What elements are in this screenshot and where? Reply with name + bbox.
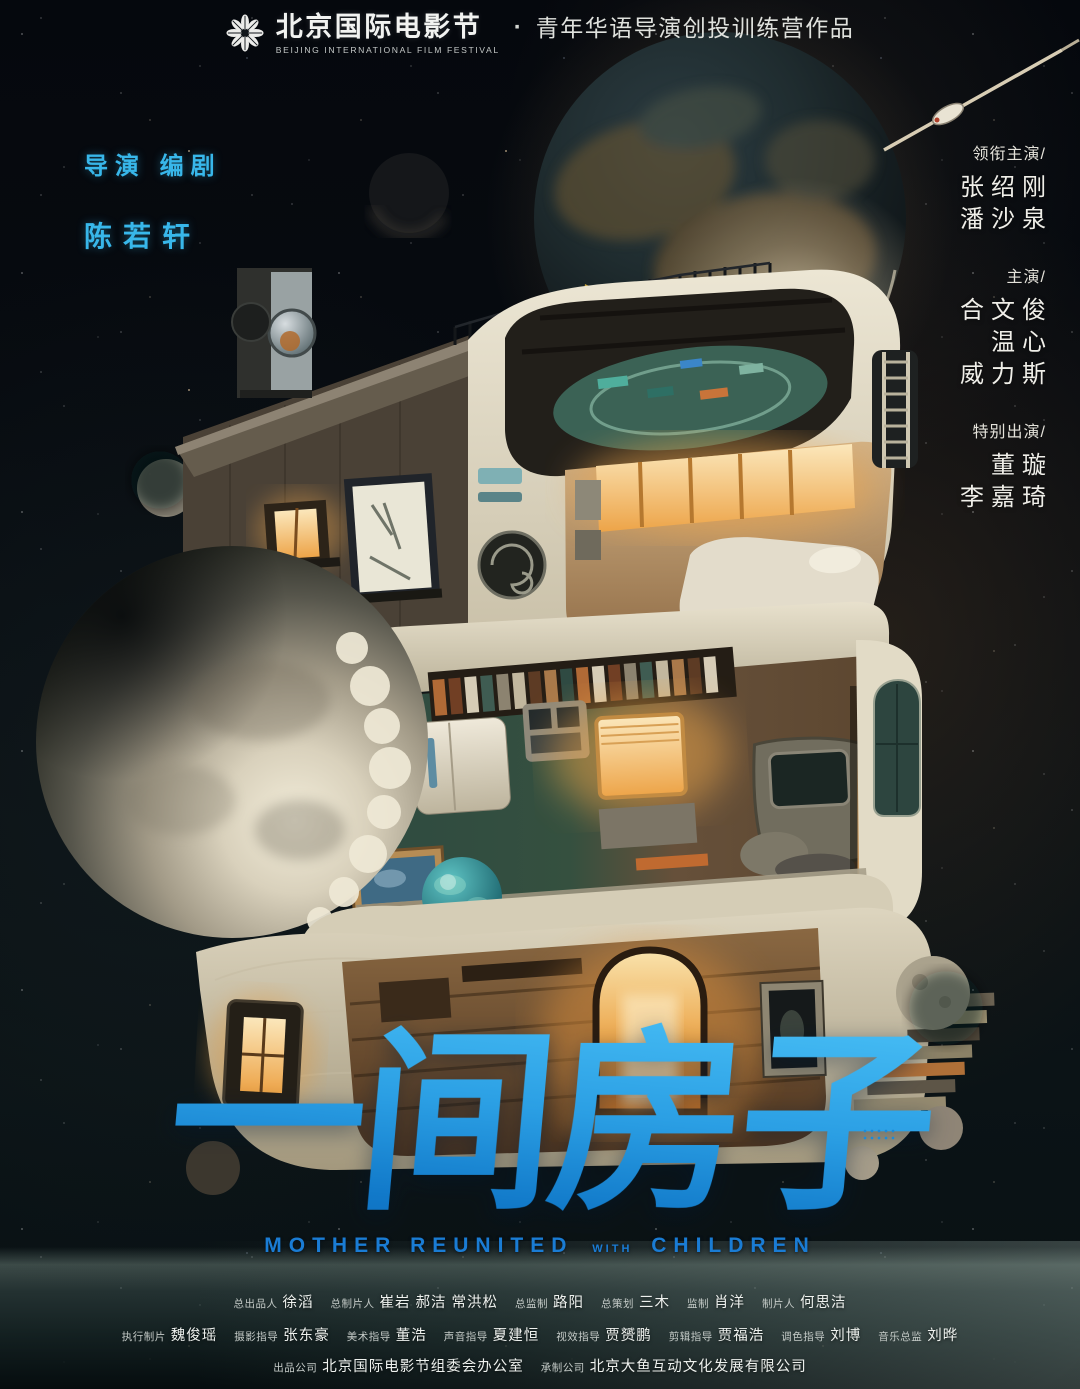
cast-block: 领衔主演/ 张绍刚 潘沙泉 主演/ 合文俊 温心 威力斯 特别出演/ 董璇 李嘉…	[960, 140, 1046, 541]
credit-item: 制片人何思洁	[762, 1291, 847, 1312]
credit-item: 总制片人崔岩 郝洁 常洪松	[330, 1291, 498, 1312]
cast-group-lead: 领衔主演/ 张绍刚 潘沙泉	[960, 140, 1046, 236]
director-name: 陈若轩	[84, 215, 222, 255]
separator-dot: ·	[514, 12, 522, 43]
credit-item: 声音指导夏建恒	[444, 1324, 540, 1345]
director-roles-label: 导演 编剧	[84, 146, 222, 181]
credit-item: 承制公司北京大鱼互动文化发展有限公司	[541, 1355, 807, 1376]
director-block: 导演 编剧 陈若轩	[84, 146, 222, 255]
festival-program-label: 青年华语导演创投训练营作品	[536, 12, 855, 44]
title-en-part2: WITH	[592, 1243, 632, 1255]
credit-item: 总出品人徐滔	[233, 1291, 313, 1312]
festival-name-block: 北京国际电影节 BEIJING INTERNATIONAL FILM FESTI…	[276, 12, 500, 55]
festival-name-en: BEIJING INTERNATIONAL FILM FESTIVAL	[276, 45, 500, 55]
cast-name: 董璇	[960, 450, 1053, 482]
credit-item: 执行制片魏俊瑶	[122, 1324, 218, 1345]
title-en-part1: MOTHER REUNITED	[264, 1234, 573, 1257]
credit-item: 音乐总监刘晔	[878, 1324, 958, 1345]
credits-line-2: 执行制片魏俊瑶 摄影指导张东豪 美术指导董浩 声音指导夏建恒 视效指导贾赟鹏 剪…	[0, 1324, 1080, 1345]
credits-line-1: 总出品人徐滔 总制片人崔岩 郝洁 常洪松 总监制路阳 总策划三木 监制肖洋 制片…	[0, 1291, 1080, 1312]
festival-header: 北京国际电影节 BEIJING INTERNATIONAL FILM FESTI…	[0, 12, 1080, 55]
cast-role-label: 特别出演/	[960, 418, 1046, 442]
credit-item: 调色指导刘博	[781, 1324, 861, 1345]
credit-item: 剪辑指导贾福浩	[669, 1324, 765, 1345]
credit-item: 总策划三木	[601, 1291, 670, 1312]
cast-group-starring: 主演/ 合文俊 温心 威力斯	[960, 263, 1046, 391]
cast-name: 温心	[960, 327, 1053, 359]
credit-item: 美术指导董浩	[347, 1324, 427, 1345]
cast-name: 合文俊	[960, 295, 1053, 327]
credit-item: 监制肖洋	[687, 1291, 745, 1312]
festival-name-cn: 北京国际电影节	[276, 12, 483, 43]
cast-name: 潘沙泉	[960, 204, 1053, 236]
cast-name: 李嘉琦	[960, 482, 1053, 514]
cast-role-label: 主演/	[960, 263, 1046, 287]
credit-item: 视效指导贾赟鹏	[556, 1324, 652, 1345]
cast-role-label: 领衔主演/	[960, 140, 1046, 164]
movie-title-en: MOTHER REUNITED WITH CHILDREN	[0, 1234, 1080, 1258]
cast-name: 威力斯	[960, 359, 1053, 391]
movie-title-cn: 一间房子	[151, 1016, 950, 1231]
movie-poster: 北京国际电影节 BEIJING INTERNATIONAL FILM FESTI…	[0, 0, 1080, 1389]
title-en-part3: CHILDREN	[651, 1234, 816, 1257]
title-circuit-dots-decoration	[862, 1128, 896, 1141]
credit-item: 摄影指导张东豪	[234, 1324, 330, 1345]
credit-item: 出品公司北京国际电影节组委会办公室	[273, 1355, 524, 1376]
credit-item: 总监制路阳	[515, 1291, 584, 1312]
cast-group-special: 特别出演/ 董璇 李嘉琦	[960, 418, 1046, 514]
credits-line-3: 出品公司北京国际电影节组委会办公室 承制公司北京大鱼互动文化发展有限公司	[0, 1355, 1080, 1376]
cast-name: 张绍刚	[960, 172, 1053, 204]
bjiff-snowflake-logo	[226, 14, 264, 52]
